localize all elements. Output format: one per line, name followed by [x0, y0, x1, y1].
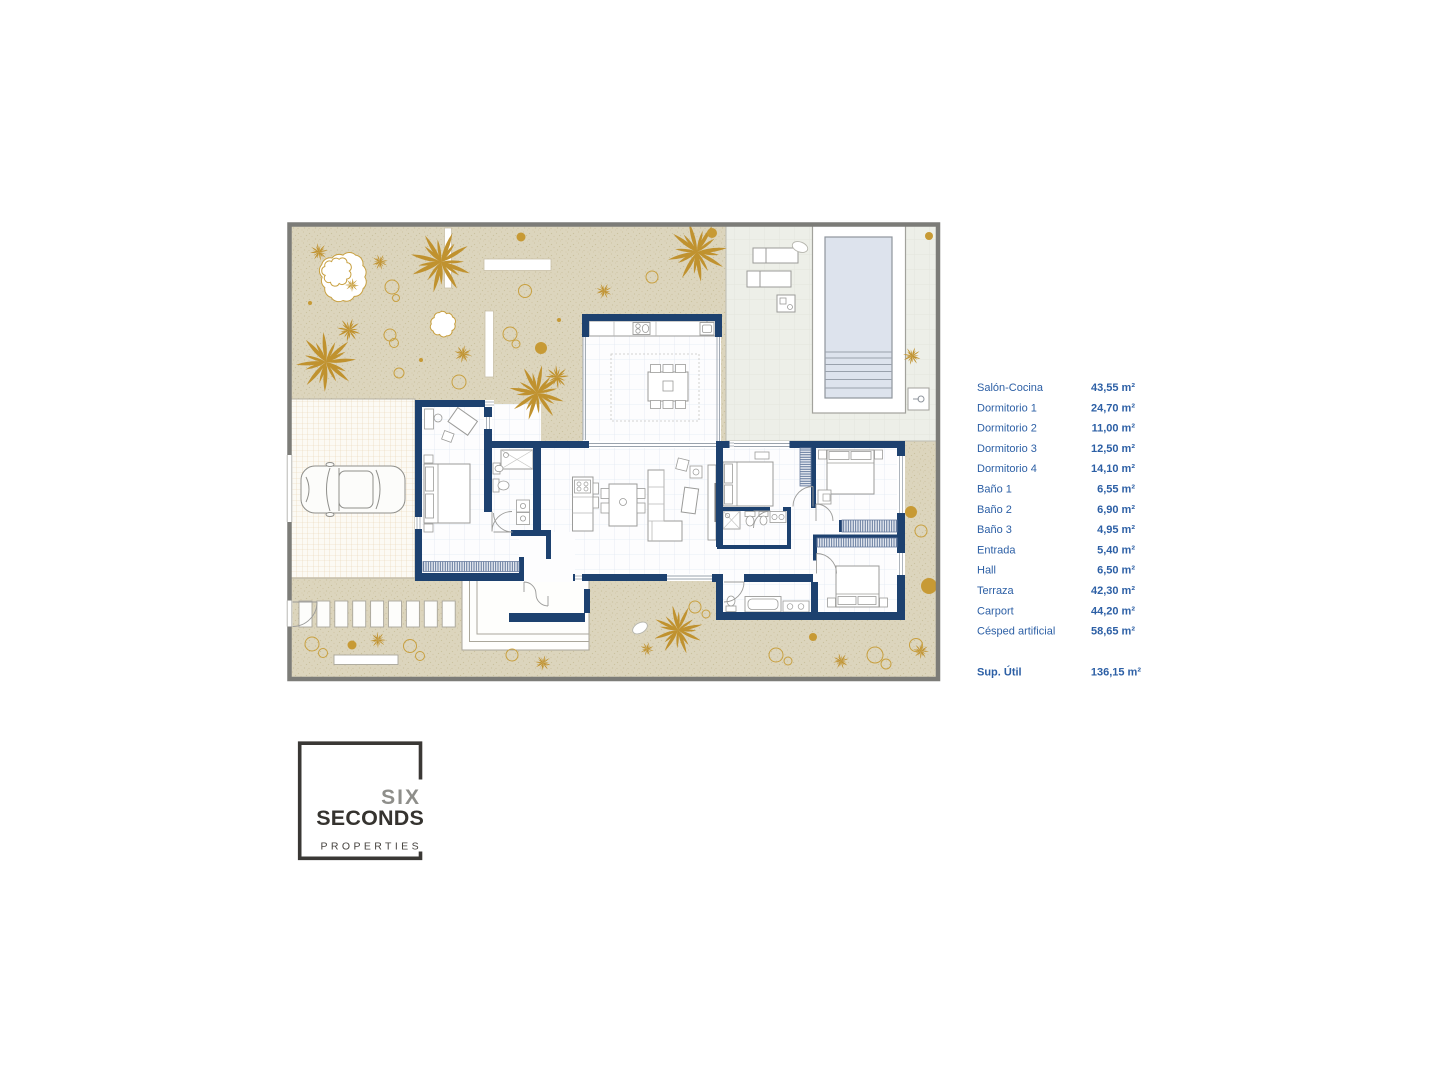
svg-text:SECONDS: SECONDS [316, 806, 424, 830]
svg-text:42,30 m²: 42,30 m² [1091, 585, 1135, 597]
svg-text:6,55 m²: 6,55 m² [1097, 484, 1135, 496]
svg-text:6,50 m²: 6,50 m² [1097, 565, 1135, 577]
svg-text:44,20 m²: 44,20 m² [1091, 605, 1135, 617]
svg-text:5,40 m²: 5,40 m² [1097, 544, 1135, 556]
svg-text:43,55 m²: 43,55 m² [1091, 382, 1135, 394]
svg-text:Dormitorio 3: Dormitorio 3 [977, 443, 1037, 455]
svg-text:14,10 m²: 14,10 m² [1091, 463, 1135, 475]
svg-text:Sup. Útil: Sup. Útil [977, 666, 1022, 679]
svg-text:Entrada: Entrada [977, 544, 1016, 556]
svg-text:58,65 m²: 58,65 m² [1091, 626, 1135, 638]
svg-text:Dormitorio 4: Dormitorio 4 [977, 463, 1037, 475]
svg-text:Baño 3: Baño 3 [977, 524, 1012, 536]
svg-text:Terraza: Terraza [977, 585, 1015, 597]
svg-text:Césped artificial: Césped artificial [977, 626, 1055, 638]
svg-text:24,70 m²: 24,70 m² [1091, 402, 1135, 414]
svg-text:12,50 m²: 12,50 m² [1091, 443, 1135, 455]
svg-text:136,15 m²: 136,15 m² [1091, 667, 1141, 679]
svg-text:Hall: Hall [977, 565, 996, 577]
svg-text:Dormitorio 1: Dormitorio 1 [977, 402, 1037, 414]
svg-text:6,90 m²: 6,90 m² [1097, 504, 1135, 516]
svg-text:Baño 2: Baño 2 [977, 504, 1012, 516]
svg-text:4,95 m²: 4,95 m² [1097, 524, 1135, 536]
svg-text:11,00 m²: 11,00 m² [1092, 423, 1136, 435]
svg-text:Salón-Cocina: Salón-Cocina [977, 382, 1044, 394]
svg-text:Dormitorio 2: Dormitorio 2 [977, 423, 1037, 435]
svg-text:Carport: Carport [977, 605, 1014, 617]
svg-text:Baño 1: Baño 1 [977, 484, 1012, 496]
svg-text:PROPERTIES: PROPERTIES [321, 841, 423, 853]
